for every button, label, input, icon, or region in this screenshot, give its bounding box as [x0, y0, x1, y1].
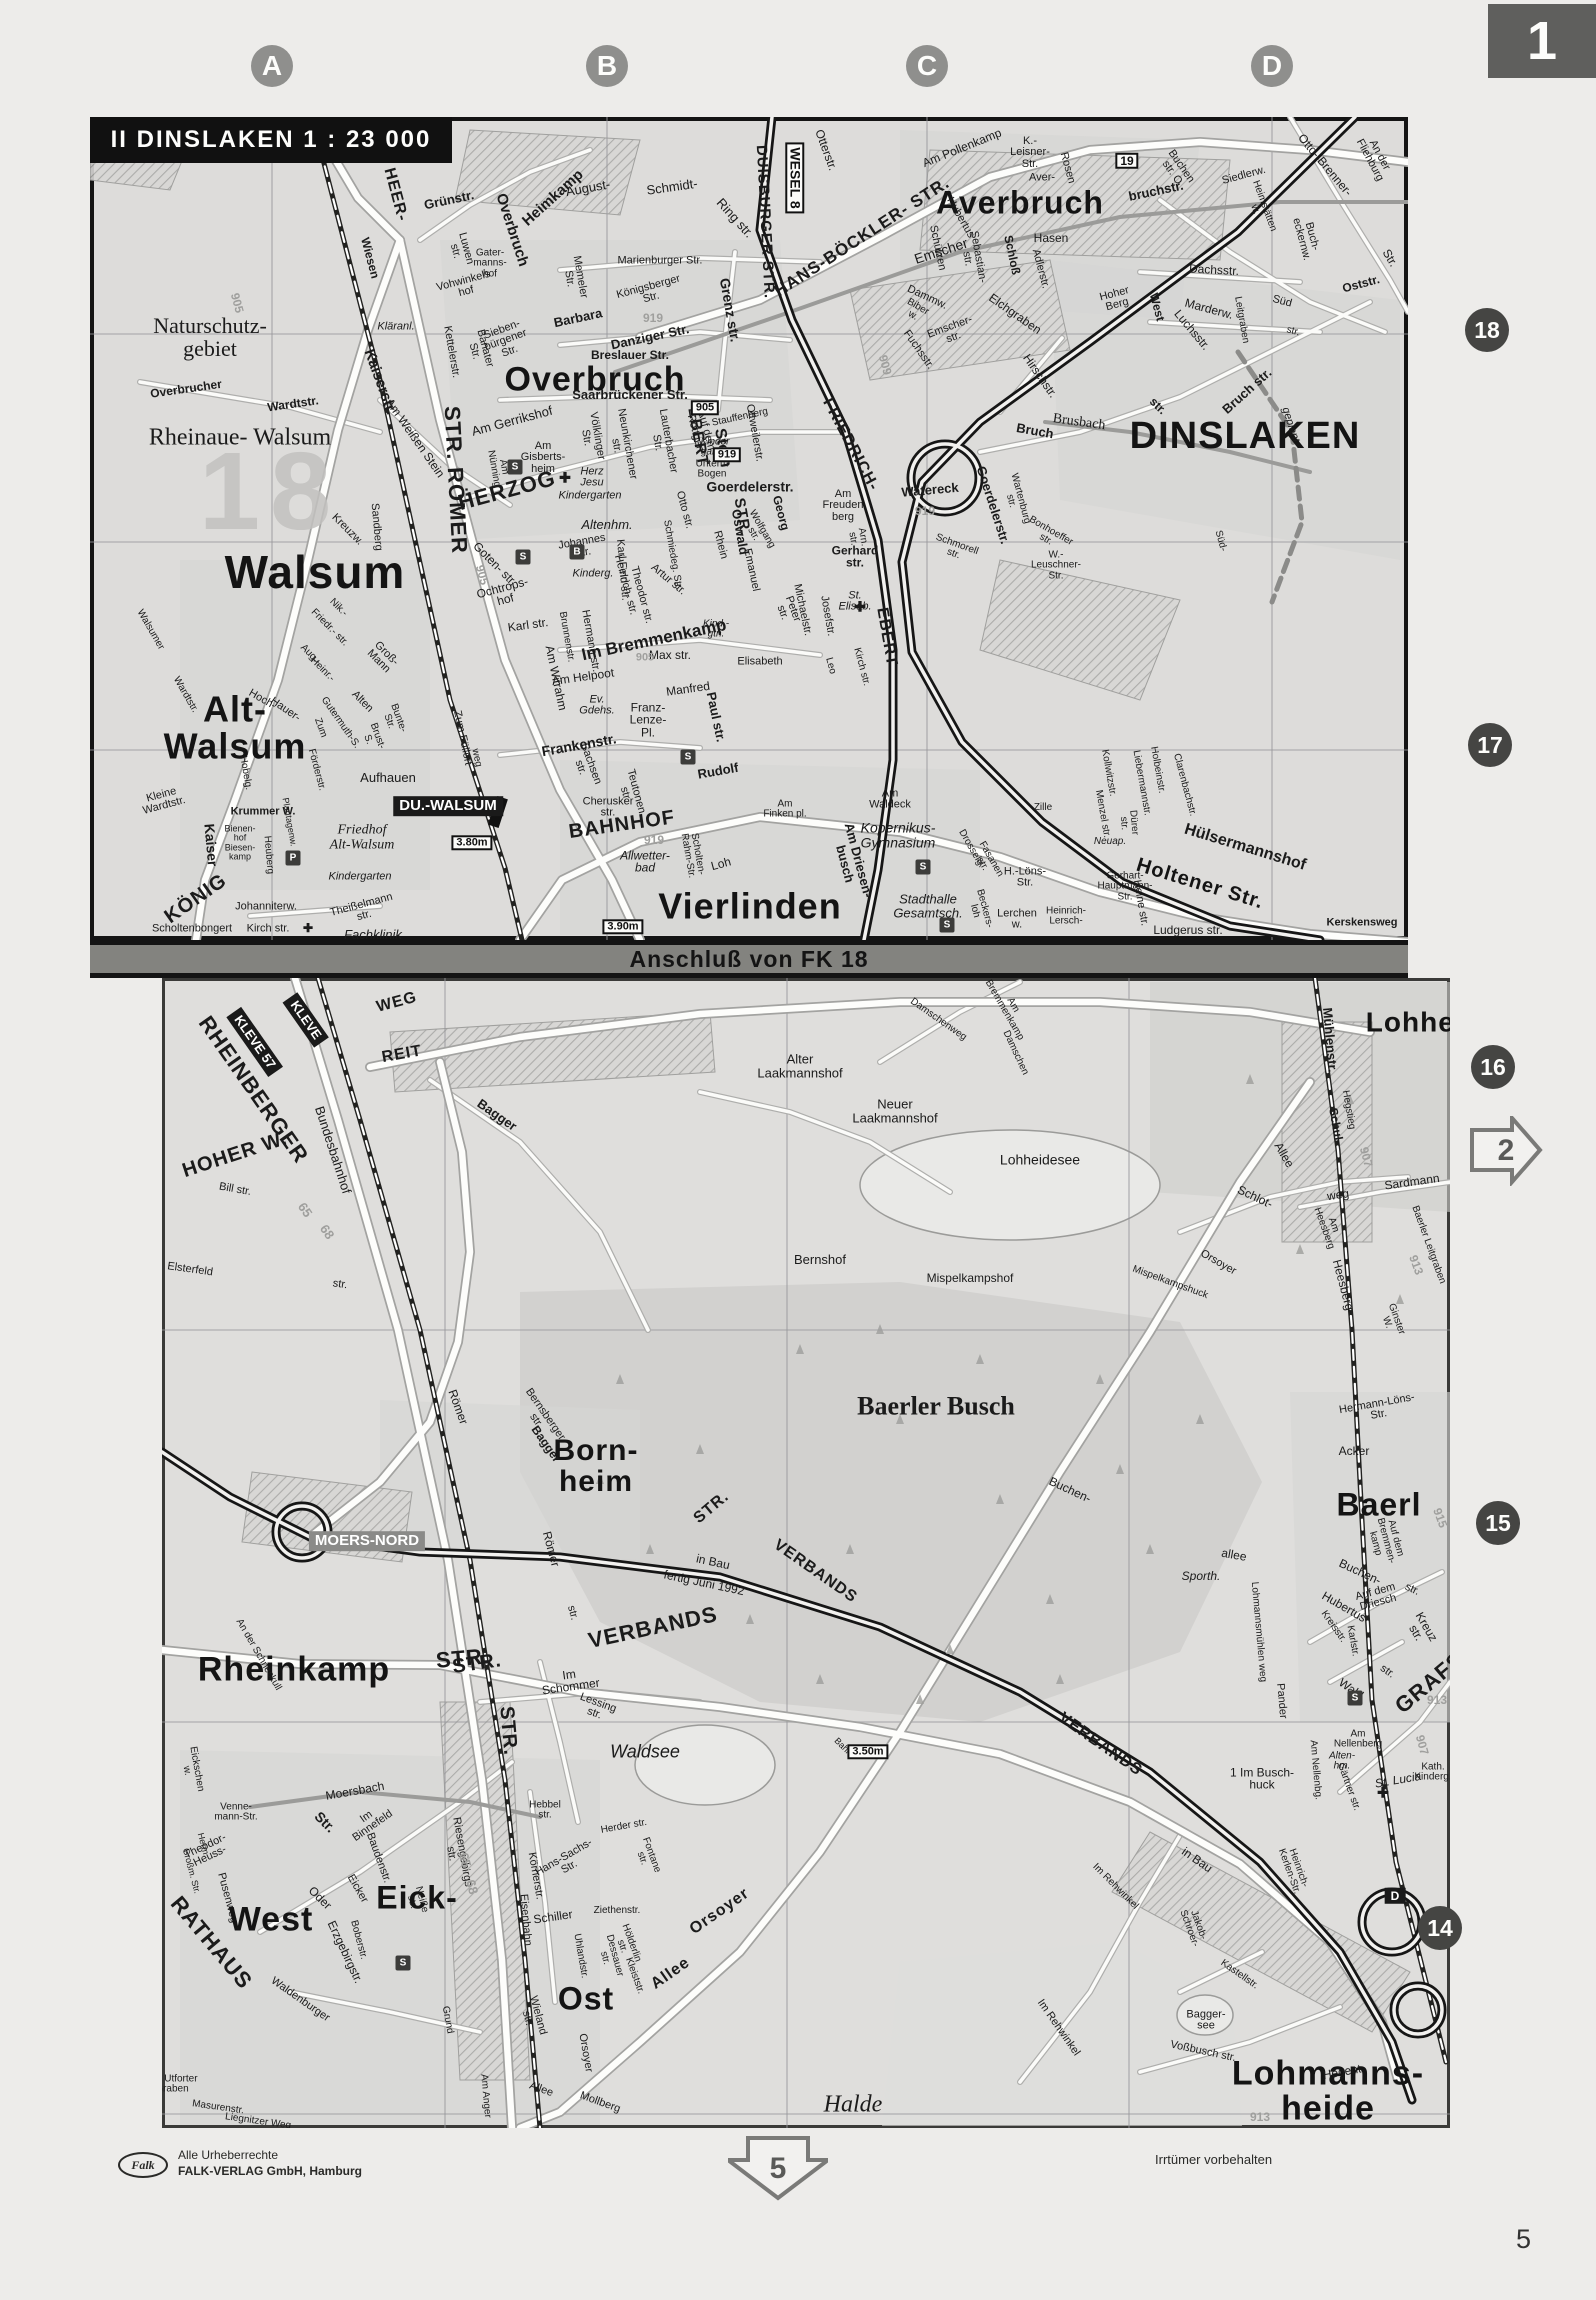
falk-logo: Falk: [118, 2152, 168, 2178]
margin-grid-row-marker-15: 15: [1476, 1501, 1520, 1545]
copyright-line-1: Alle Urheberrechte: [178, 2148, 278, 2162]
adjacent-page-arrow-2: 2: [1468, 1116, 1544, 1186]
disclaimer-text: Irrtümer vorbehalten: [1155, 2152, 1272, 2167]
grid-column-marker-b: B: [586, 45, 628, 87]
margin-grid-row-marker-17: 17: [1468, 723, 1512, 767]
margin-grid-row-marker-14: 14: [1418, 1906, 1462, 1950]
margin-grid-row-marker-16: 16: [1471, 1045, 1515, 1089]
grid-column-marker-a: A: [251, 45, 293, 87]
copyright-line-2: FALK-VERLAG GmbH, Hamburg: [178, 2164, 362, 2178]
footer: Falk Alle Urheberrechte FALK-VERLAG GmbH…: [0, 2128, 1596, 2300]
grid-column-marker-d: D: [1251, 45, 1293, 87]
margin-grid-row-marker-18: 18: [1465, 308, 1509, 352]
falk-map-page: { "page": {"tab_number":"1","page_number…: [0, 0, 1596, 2300]
page-number: 5: [1516, 2224, 1531, 2255]
labels-layer-page: ABCD181716151425: [0, 0, 1596, 2300]
grid-column-marker-c: C: [906, 45, 948, 87]
falk-logo-text: Falk: [131, 2158, 154, 2172]
